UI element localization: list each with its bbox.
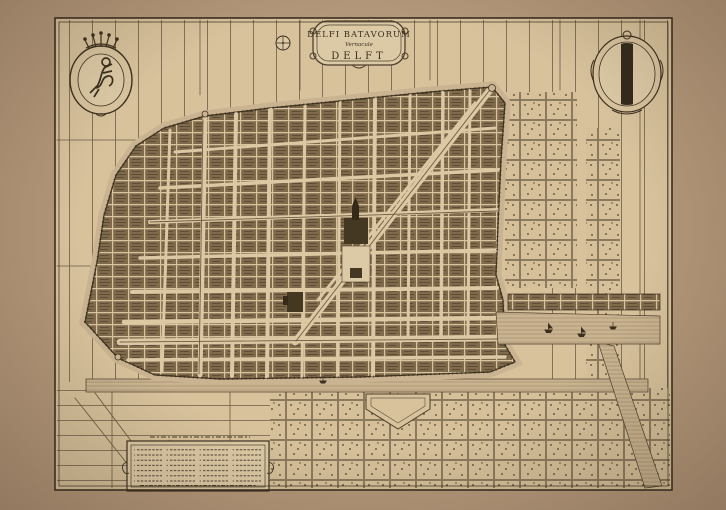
legend-index-text <box>134 449 262 482</box>
map-title-dutch: DELFT <box>331 51 387 62</box>
market-square <box>342 246 370 282</box>
north-east-gate <box>489 85 496 92</box>
quay-buildings <box>508 294 660 310</box>
harbor-water <box>496 312 660 344</box>
compass-icon <box>276 36 290 50</box>
west-gate <box>115 354 121 360</box>
legend-cartouche <box>123 437 274 491</box>
town-hall <box>350 268 362 278</box>
map-subtitle: Vernacule <box>345 42 374 48</box>
map-title: DELFI BATAVORUM <box>307 30 411 40</box>
delft-map-engraving: DELFI BATAVORUM Vernacule DELFT <box>0 0 726 510</box>
north-gate <box>202 111 208 117</box>
map-engraving-photo: DELFI BATAVORUM Vernacule DELFT <box>0 0 726 510</box>
title-cartouche: DELFI BATAVORUM Vernacule DELFT <box>307 21 411 68</box>
